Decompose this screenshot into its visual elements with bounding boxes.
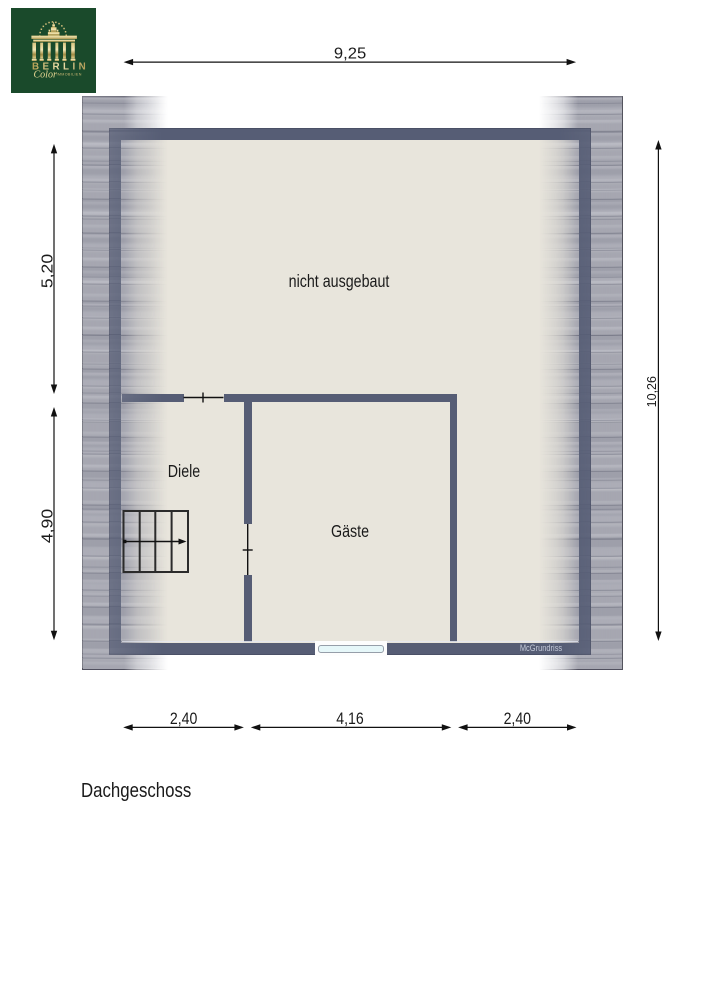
svg-text:4,16: 4,16 <box>336 710 363 728</box>
svg-text:Color: Color <box>34 69 57 80</box>
svg-text:4,90: 4,90 <box>38 509 56 543</box>
svg-text:2,40: 2,40 <box>170 710 198 728</box>
svg-text:10,26: 10,26 <box>645 376 659 407</box>
svg-text:5,20: 5,20 <box>38 254 56 288</box>
svg-text:9,25: 9,25 <box>334 45 366 62</box>
svg-text:IMMOBILIEN: IMMOBILIEN <box>57 73 82 77</box>
svg-text:2,40: 2,40 <box>504 710 532 728</box>
